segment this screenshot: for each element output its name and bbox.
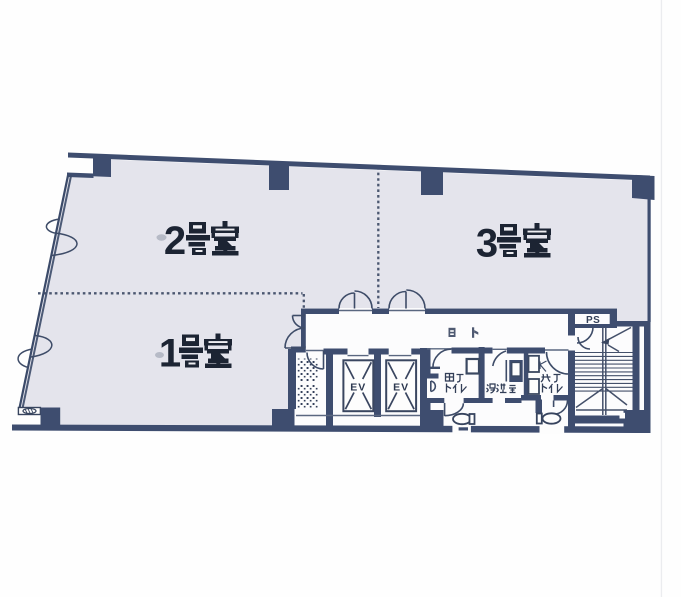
svg-text:2: 2 bbox=[164, 219, 186, 263]
svg-text:EV: EV bbox=[393, 382, 409, 394]
svg-text:EV: EV bbox=[350, 382, 366, 394]
svg-text:3: 3 bbox=[476, 222, 498, 266]
svg-text:PS: PS bbox=[586, 315, 600, 326]
